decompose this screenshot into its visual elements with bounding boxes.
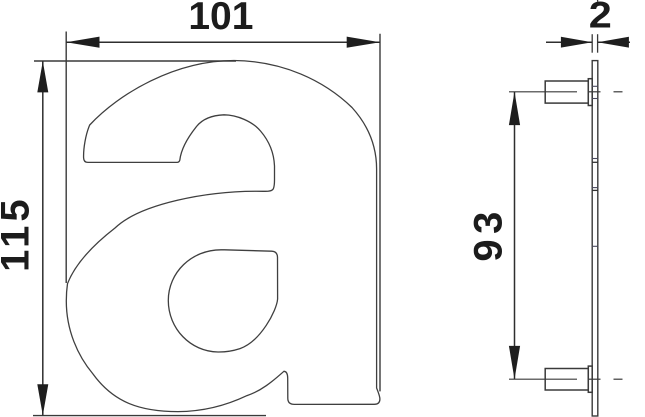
svg-text:2: 2 xyxy=(589,0,612,36)
svg-text:101: 101 xyxy=(188,0,253,38)
svg-text:115: 115 xyxy=(0,195,38,272)
svg-text:93: 93 xyxy=(466,206,510,262)
